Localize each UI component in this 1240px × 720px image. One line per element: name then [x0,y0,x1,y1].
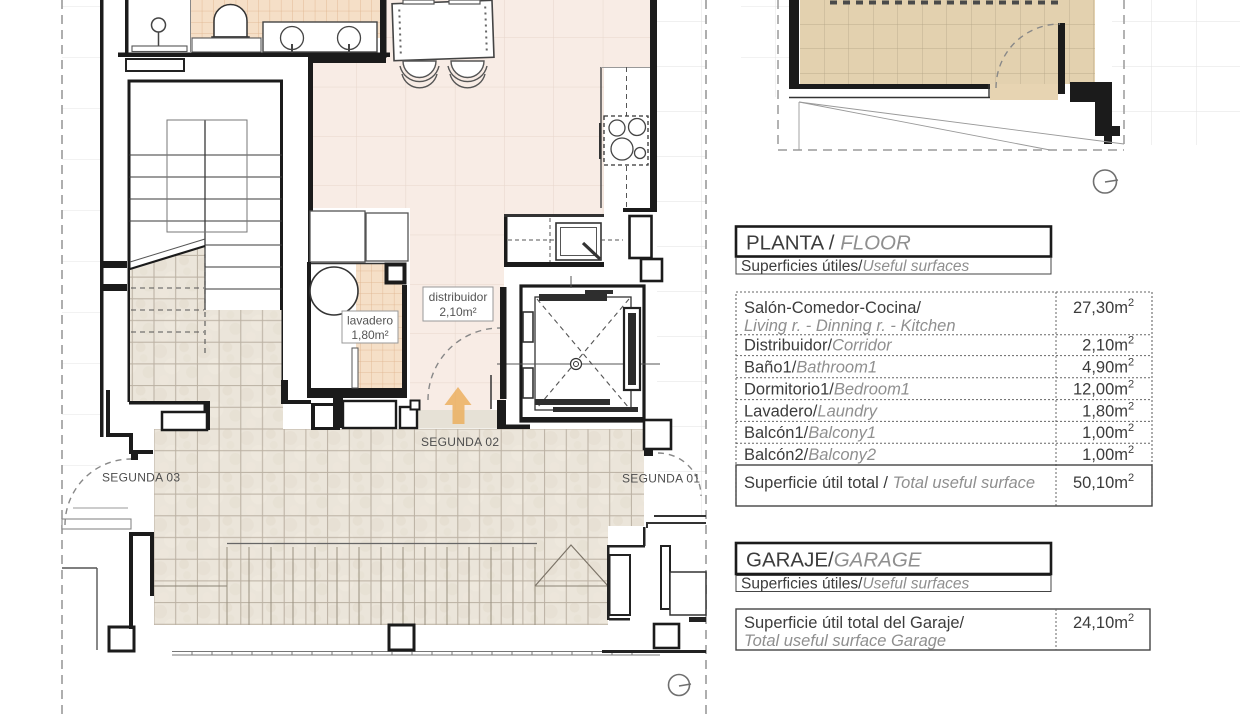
svg-text:2: 2 [1128,379,1134,391]
svg-text:50,10m: 50,10m [1073,474,1128,492]
svg-text:4,90m: 4,90m [1082,359,1128,377]
svg-text:Superficie útil total / Total: Superficie útil total / Total useful sur… [744,474,1035,492]
svg-text:2: 2 [1128,444,1134,456]
svg-text:SEGUNDA 02: SEGUNDA 02 [421,435,499,449]
svg-text:Balcón1/Balcony1: Balcón1/Balcony1 [744,424,876,442]
svg-text:Salón-Comedor-Cocina/: Salón-Comedor-Cocina/ [744,299,921,317]
svg-text:Superficies útiles/Useful surf: Superficies útiles/Useful surfaces [741,258,970,275]
svg-text:GARAJE/GARAGE: GARAJE/GARAGE [746,549,922,572]
svg-text:12,00m: 12,00m [1073,381,1128,399]
svg-text:1,80m: 1,80m [1082,403,1128,421]
svg-text:Living r. - Dinning r. - Kitch: Living r. - Dinning r. - Kitchen [744,317,956,335]
svg-text:24,10m: 24,10m [1073,614,1128,632]
svg-text:Superficie útil total del Gara: Superficie útil total del Garaje/ [744,614,965,632]
svg-text:Lavadero/Laundry: Lavadero/Laundry [744,403,879,421]
svg-text:1,00m: 1,00m [1082,446,1128,464]
svg-text:Dormitorio1/Bedroom1: Dormitorio1/Bedroom1 [744,381,910,399]
svg-text:2: 2 [1128,297,1134,309]
svg-text:2: 2 [1128,335,1134,347]
svg-text:2: 2 [1128,357,1134,369]
svg-text:SEGUNDA 01: SEGUNDA 01 [622,472,700,486]
svg-text:2: 2 [1128,422,1134,434]
svg-text:lavadero: lavadero [347,314,393,328]
svg-text:Balcón2/Balcony2: Balcón2/Balcony2 [744,446,876,464]
svg-text:2: 2 [1128,472,1134,484]
svg-text:1,00m: 1,00m [1082,424,1128,442]
svg-text:Superficies útiles/Useful surf: Superficies útiles/Useful surfaces [741,576,970,593]
svg-text:Distribuidor/Corridor: Distribuidor/Corridor [744,337,893,355]
svg-text:Total useful surface Garage: Total useful surface Garage [744,632,946,650]
svg-text:SEGUNDA 03: SEGUNDA 03 [102,471,180,485]
svg-text:2,10m: 2,10m [1082,337,1128,355]
svg-text:PLANTA / FLOOR: PLANTA / FLOOR [746,232,911,255]
svg-text:2: 2 [1128,401,1134,413]
svg-text:2: 2 [1128,612,1134,624]
svg-text:2,10m²: 2,10m² [439,305,476,319]
svg-text:27,30m: 27,30m [1073,299,1128,317]
svg-text:distribuidor: distribuidor [429,290,488,304]
svg-text:Baño1/Bathroom1: Baño1/Bathroom1 [744,359,877,377]
svg-text:1,80m²: 1,80m² [351,328,388,342]
